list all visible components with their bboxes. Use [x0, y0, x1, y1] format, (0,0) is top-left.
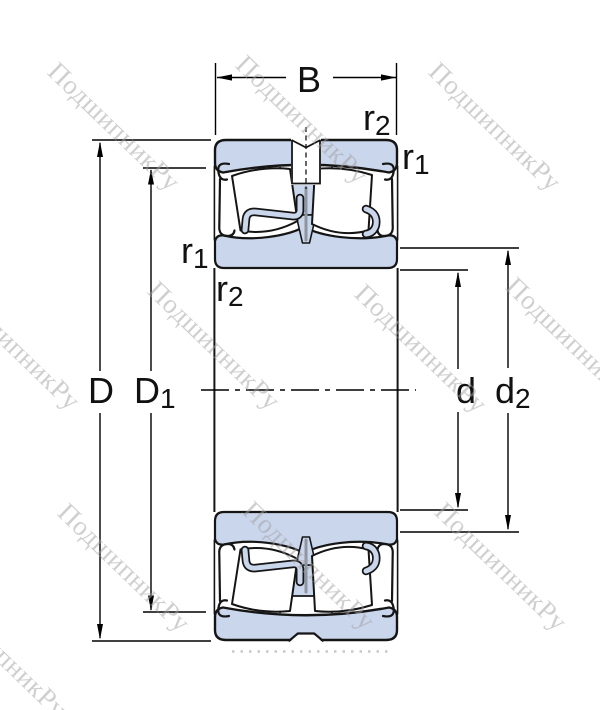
bearing-diagram: B D D1 d d2 r2 r1 r1 r2 ПодшипникРу Подш… — [0, 0, 600, 710]
bearing-top-half — [214, 127, 397, 268]
label-D: D — [88, 370, 114, 411]
label-B: B — [297, 59, 321, 100]
